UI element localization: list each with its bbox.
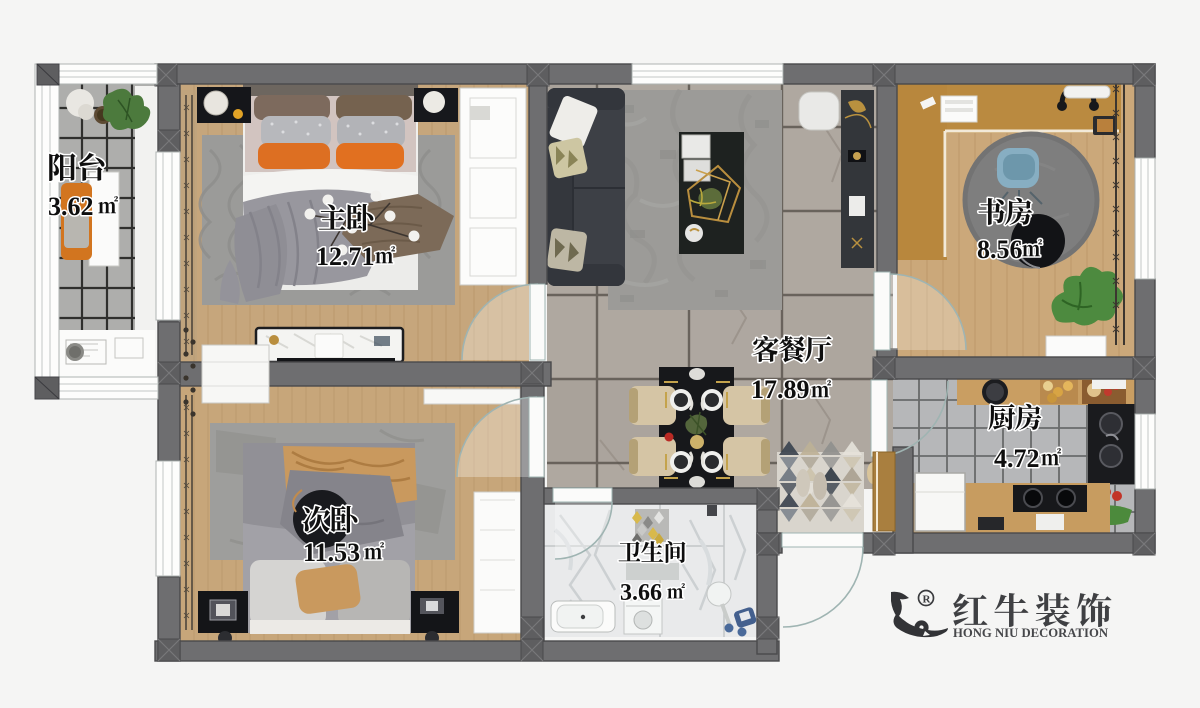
svg-text:HONG NIU DECORATION: HONG NIU DECORATION bbox=[953, 625, 1109, 640]
svg-text:3.66: 3.66 bbox=[620, 580, 662, 606]
svg-text:4.72: 4.72 bbox=[994, 444, 1040, 473]
svg-text:3.62: 3.62 bbox=[48, 192, 94, 221]
svg-text:8.56: 8.56 bbox=[977, 235, 1023, 264]
svg-text:12.71: 12.71 bbox=[316, 242, 375, 271]
svg-text:11.53: 11.53 bbox=[303, 538, 360, 567]
svg-text:R: R bbox=[923, 594, 932, 606]
svg-text:17.89: 17.89 bbox=[751, 375, 810, 404]
